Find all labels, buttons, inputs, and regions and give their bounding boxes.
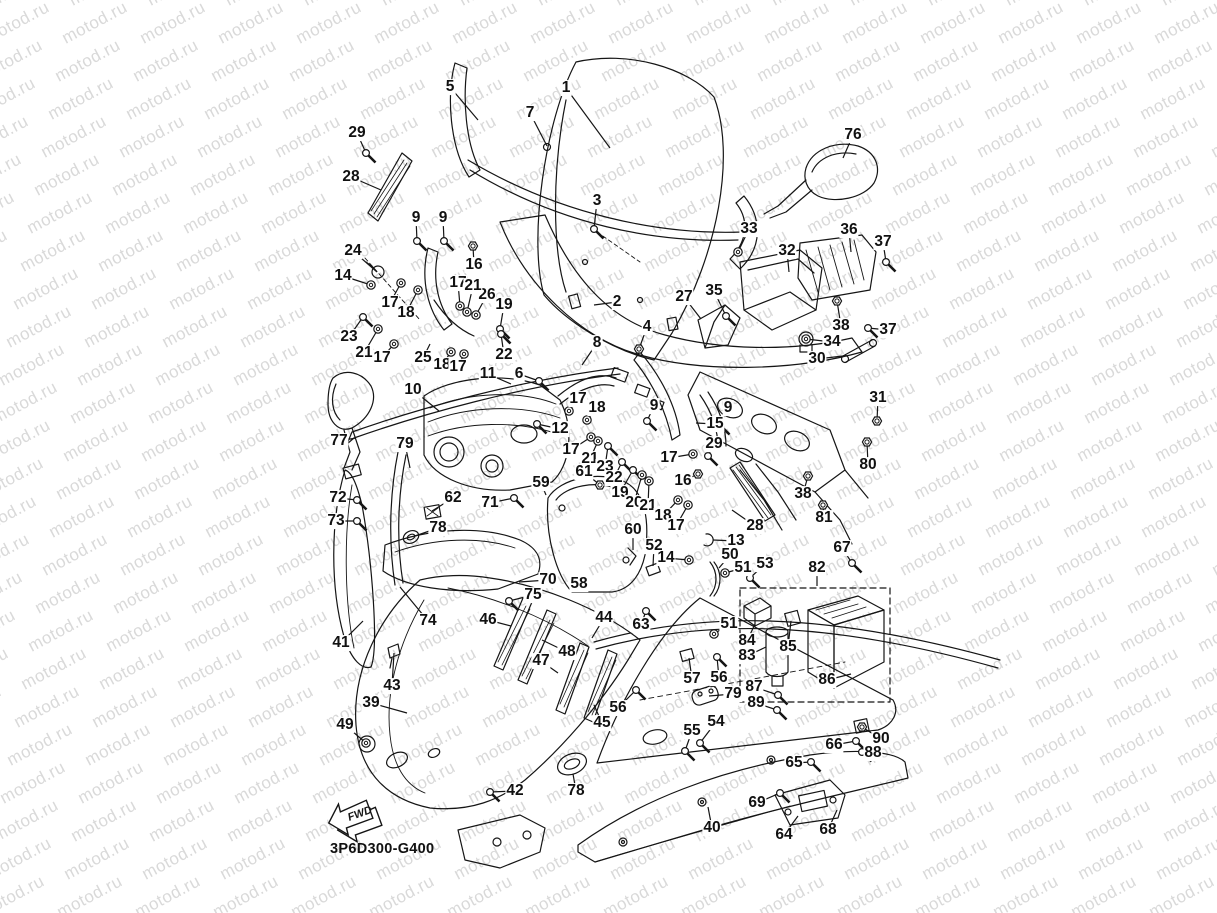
exploded-drawing	[0, 0, 1217, 913]
screw-head-icon	[643, 608, 650, 615]
nut-icon	[857, 723, 866, 731]
leader-line	[353, 251, 377, 272]
screw-head-icon	[865, 325, 872, 332]
washer-icon	[390, 340, 398, 348]
leader-line	[541, 661, 558, 673]
screw-shaft-icon	[753, 581, 760, 588]
nut-icon	[872, 417, 881, 425]
screw-shaft-icon	[889, 265, 896, 272]
screw-head-icon	[534, 421, 541, 428]
screw-head-icon	[360, 314, 367, 321]
screw-head-icon	[747, 575, 754, 582]
washer-icon	[734, 248, 742, 256]
screw-shaft-icon	[649, 614, 656, 621]
leader-line	[843, 135, 853, 158]
screw-head-icon	[630, 467, 637, 474]
leader-line	[519, 580, 548, 582]
screw-head-icon	[723, 313, 730, 320]
screw-head-icon	[487, 789, 494, 796]
nut-icon	[832, 297, 841, 305]
screw-shaft-icon	[780, 713, 787, 720]
washer-icon	[374, 325, 382, 333]
leader-line	[542, 640, 567, 652]
washer-icon	[456, 302, 464, 310]
leader-line	[747, 624, 755, 641]
nut-icon	[595, 481, 604, 489]
screw-head-icon	[697, 740, 704, 747]
nut-icon	[818, 501, 827, 509]
screw-head-icon	[363, 150, 370, 157]
screw-shaft-icon	[865, 755, 872, 762]
screw-shaft-icon	[420, 244, 427, 251]
screw-head-icon	[808, 759, 815, 766]
leader-line	[732, 510, 755, 526]
leader-line	[689, 658, 692, 679]
screw-shaft-icon	[814, 765, 821, 772]
screw-head-icon	[714, 654, 721, 661]
screw-shaft-icon	[723, 428, 730, 435]
leader-line	[594, 302, 617, 305]
washer-icon	[472, 311, 480, 319]
washer-icon	[684, 501, 692, 509]
leader-line	[653, 546, 654, 566]
screw-head-icon	[591, 226, 598, 233]
screw-shaft-icon	[447, 244, 454, 251]
screw-head-icon	[775, 692, 782, 699]
washer-icon	[447, 348, 455, 356]
washer-icon	[645, 477, 653, 485]
washer-icon	[710, 630, 718, 638]
leader-line	[827, 674, 851, 680]
leader-line	[709, 694, 733, 696]
screw-shaft-icon	[711, 459, 718, 466]
washer-icon	[460, 350, 468, 358]
washer-icon	[565, 407, 573, 415]
leader-line	[573, 774, 576, 791]
leader-line	[719, 555, 730, 568]
leader-line	[488, 620, 511, 626]
washer-icon	[674, 496, 682, 504]
washer-icon	[685, 556, 693, 564]
washer-icon	[689, 450, 697, 458]
screw-head-icon	[511, 495, 518, 502]
nut-icon	[803, 472, 812, 480]
screw-head-icon	[605, 443, 612, 450]
screw-head-icon	[354, 518, 361, 525]
washer-icon	[397, 279, 405, 287]
screw-head-icon	[506, 598, 513, 605]
screw-head-icon	[682, 748, 689, 755]
screw-head-icon	[441, 238, 448, 245]
leader-line	[541, 483, 546, 495]
leader-line	[784, 816, 798, 835]
screw-shaft-icon	[639, 693, 646, 700]
leader-line	[423, 344, 430, 358]
screw-head-icon	[633, 687, 640, 694]
screw-head-icon	[859, 749, 866, 756]
screw-shaft-icon	[688, 754, 695, 761]
leader-line	[450, 87, 478, 120]
nut-icon	[468, 242, 477, 250]
washer-icon	[463, 308, 471, 316]
screw-shaft-icon	[871, 331, 878, 338]
parts-diagram-page: motod.rumotod.rumotod.rumotod.rumotod.ru…	[0, 0, 1217, 913]
leader-line	[339, 438, 356, 441]
washer-icon	[583, 416, 591, 424]
screw-head-icon	[853, 738, 860, 745]
leader-lines	[336, 87, 888, 835]
screw-head-icon	[619, 459, 626, 466]
screw-head-icon	[705, 453, 712, 460]
screw-shaft-icon	[369, 156, 376, 163]
screw-shaft-icon	[493, 795, 500, 802]
washer-icon	[594, 437, 602, 445]
screw-shaft-icon	[597, 232, 604, 239]
screw-head-icon	[774, 707, 781, 714]
screw-head-icon	[644, 418, 651, 425]
leader-line	[432, 498, 453, 511]
screw-shaft-icon	[720, 660, 727, 667]
screw-head-icon	[717, 422, 724, 429]
leader-line	[351, 177, 381, 190]
screw-head-icon	[883, 259, 890, 266]
screw-shaft-icon	[855, 566, 862, 573]
screw-head-icon	[849, 560, 856, 567]
screw-head-icon	[536, 378, 543, 385]
nut-icon	[862, 438, 871, 446]
screw-head-icon	[414, 238, 421, 245]
leader-line	[708, 807, 712, 828]
washer-icon	[638, 471, 646, 479]
screw-head-icon	[777, 790, 784, 797]
leader-line	[696, 423, 715, 424]
leader-line	[747, 647, 766, 656]
leader-line	[582, 343, 597, 365]
washer-icon	[802, 335, 810, 343]
leader-line	[713, 540, 736, 541]
leader-line	[577, 577, 579, 584]
screw-shaft-icon	[611, 449, 618, 456]
screw-shaft-icon	[703, 746, 710, 753]
screw-shaft-icon	[781, 698, 788, 705]
leader-line	[530, 113, 547, 146]
fastener-glyphs	[354, 150, 896, 803]
line-art	[328, 58, 1000, 868]
screw-shaft-icon	[729, 319, 736, 326]
leader-line	[828, 810, 837, 830]
screw-head-icon	[354, 497, 361, 504]
screw-shaft-icon	[650, 424, 657, 431]
leader-line	[566, 88, 610, 148]
washer-icon	[721, 569, 729, 577]
screw-shaft-icon	[366, 320, 373, 327]
screw-shaft-icon	[517, 501, 524, 508]
screw-shaft-icon	[783, 796, 790, 803]
leader-line	[684, 297, 701, 319]
screw-head-icon	[498, 331, 505, 338]
nut-icon	[693, 470, 702, 478]
nut-icon	[634, 345, 643, 353]
washer-icon	[367, 281, 375, 289]
washer-icon	[414, 286, 422, 294]
leader-line	[400, 587, 428, 621]
leader-line	[849, 230, 851, 252]
washer-icon	[362, 739, 370, 747]
leader-line	[592, 618, 604, 638]
